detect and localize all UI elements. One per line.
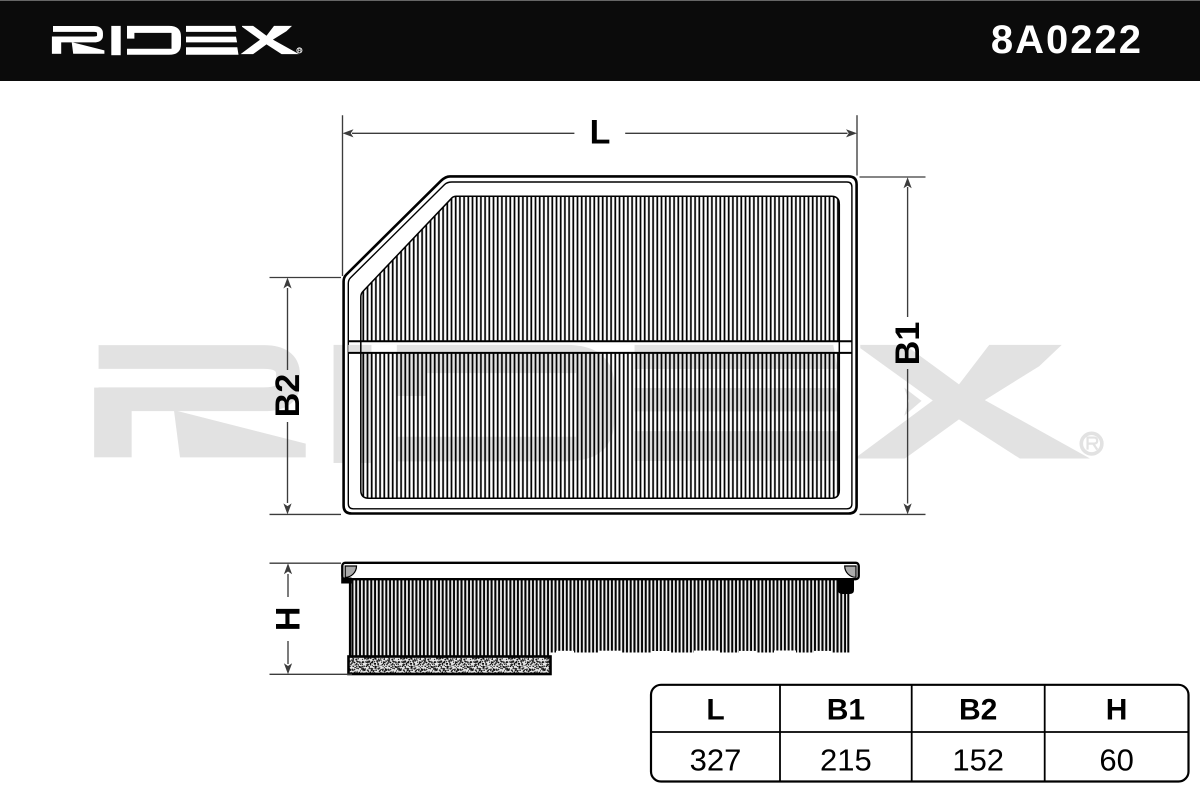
svg-text:8A0222: 8A0222 bbox=[991, 18, 1143, 62]
svg-text:B2: B2 bbox=[959, 694, 997, 727]
svg-text:B1: B1 bbox=[827, 694, 865, 727]
svg-text:327: 327 bbox=[690, 742, 742, 777]
svg-text:H: H bbox=[1106, 694, 1128, 727]
svg-text:L: L bbox=[590, 114, 611, 152]
svg-text:60: 60 bbox=[1099, 742, 1133, 777]
svg-text:B1: B1 bbox=[889, 322, 927, 365]
svg-text:215: 215 bbox=[820, 742, 872, 777]
svg-text:B2: B2 bbox=[269, 374, 307, 417]
svg-text:L: L bbox=[706, 694, 724, 727]
svg-text:H: H bbox=[270, 607, 308, 632]
svg-text:152: 152 bbox=[952, 742, 1004, 777]
